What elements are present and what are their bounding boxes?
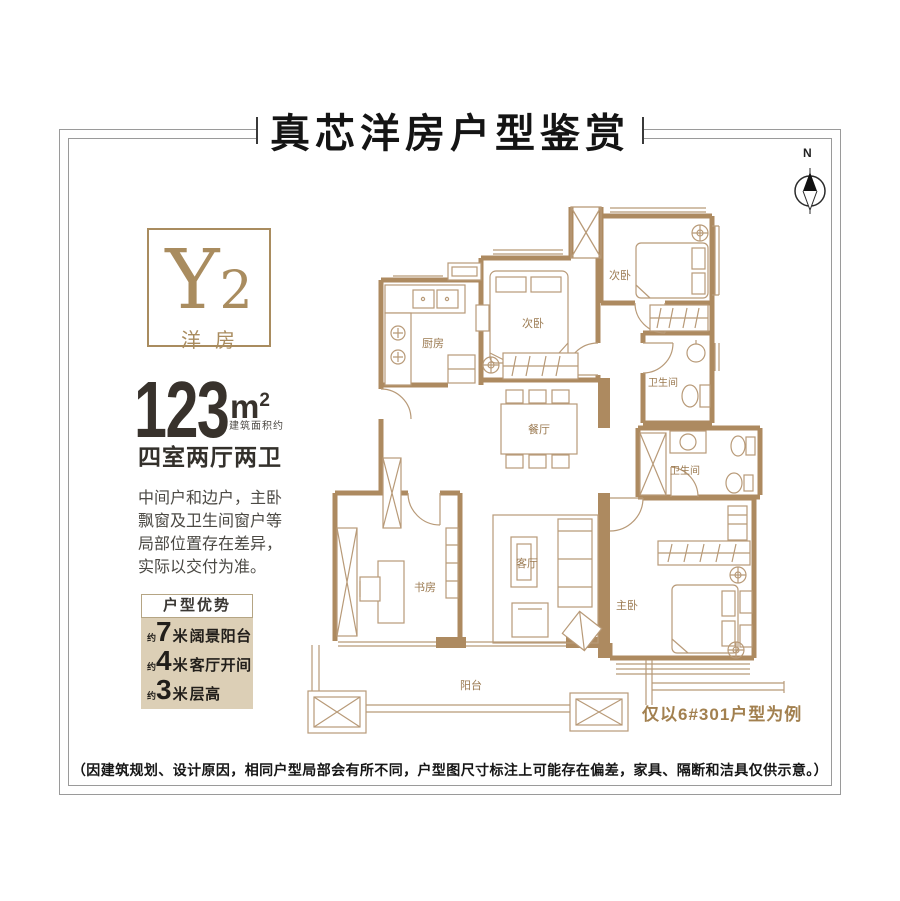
advantages-panel: 约7米阔景阳台 约4米客厅开间 约3米层高 bbox=[141, 618, 253, 709]
study-furniture bbox=[360, 528, 458, 623]
advantage-value: 3 bbox=[156, 676, 172, 704]
room-label-master: 主卧 bbox=[616, 599, 638, 612]
advantage-value: 7 bbox=[156, 618, 172, 646]
advantage-item: 约7米阔景阳台 bbox=[141, 618, 253, 647]
room-label-study: 书房 bbox=[414, 581, 436, 594]
unit-type-label: 洋房 bbox=[161, 324, 269, 353]
elevator-shaft bbox=[571, 207, 601, 258]
advantage-unit: 米 bbox=[173, 654, 188, 675]
unit-code-letter: Y bbox=[165, 233, 219, 328]
living-furniture bbox=[493, 515, 602, 651]
room-label-bedroom-center: 次卧 bbox=[522, 316, 544, 330]
disclaimer: （因建筑规划、设计原因，相同户型局部会有所不同，户型图尺寸标注上可能存在偏差，家… bbox=[0, 760, 900, 780]
advantage-approx: 约 bbox=[147, 631, 156, 644]
floorplan: 厨房 次卧 次卧 卫生间 卫生间 餐厅 客厅 书房 主卧 阳台 bbox=[298, 193, 790, 755]
rooms-summary: 四室两厅两卫 bbox=[138, 438, 282, 472]
room-label-bath-lower: 卫生间 bbox=[670, 464, 700, 477]
room-label-bath-upper: 卫生间 bbox=[648, 376, 678, 389]
remark-line: 实际以交付为准。 bbox=[138, 556, 298, 579]
unit-code: Y2 bbox=[149, 240, 269, 322]
advantage-unit: 米 bbox=[173, 625, 188, 646]
advantage-label: 客厅开间 bbox=[190, 654, 252, 675]
advantage-label: 阔景阳台 bbox=[190, 625, 252, 646]
area-note: 建筑面积约 bbox=[229, 417, 284, 432]
room-label-bedroom-right: 次卧 bbox=[609, 268, 631, 282]
poster-canvas: 真芯洋房户型鉴赏 Y2 洋房 123 m2 建筑面积约 四室两厅两卫 中间户和边… bbox=[0, 0, 900, 901]
room-label-dining: 餐厅 bbox=[528, 422, 550, 436]
area-unit-sup: 2 bbox=[259, 390, 270, 411]
advantages-title: 户型优势 bbox=[141, 594, 253, 618]
remark-paragraph: 中间户和边户，主卧 飘窗及卫生间窗户等 局部位置存在差异， 实际以交付为准。 bbox=[138, 487, 298, 579]
remark-line: 飘窗及卫生间窗户等 bbox=[138, 510, 298, 533]
page-title: 真芯洋房户型鉴赏 bbox=[0, 101, 900, 159]
unit-code-number: 2 bbox=[220, 261, 253, 321]
room-label-balcony: 阳台 bbox=[460, 678, 482, 692]
bedroom2-furniture bbox=[636, 243, 708, 331]
advantage-item: 约4米客厅开间 bbox=[141, 647, 253, 676]
unit-badge: Y2 洋房 bbox=[147, 228, 271, 347]
advantage-approx: 约 bbox=[147, 660, 156, 673]
advantage-item: 约3米层高 bbox=[141, 676, 253, 705]
remark-line: 局部位置存在差异， bbox=[138, 533, 298, 556]
advantage-label: 层高 bbox=[190, 683, 221, 704]
bathroom2-fixtures bbox=[640, 431, 755, 495]
bathroom1-fixtures bbox=[682, 340, 710, 407]
advantage-approx: 约 bbox=[147, 689, 156, 702]
room-label-living: 客厅 bbox=[516, 556, 538, 570]
example-note: 仅以6#301户型为例 bbox=[642, 700, 802, 725]
advantage-value: 4 bbox=[156, 647, 172, 675]
room-label-kitchen: 厨房 bbox=[422, 337, 444, 350]
remark-line: 中间户和边户，主卧 bbox=[138, 487, 298, 510]
advantage-unit: 米 bbox=[173, 683, 188, 704]
